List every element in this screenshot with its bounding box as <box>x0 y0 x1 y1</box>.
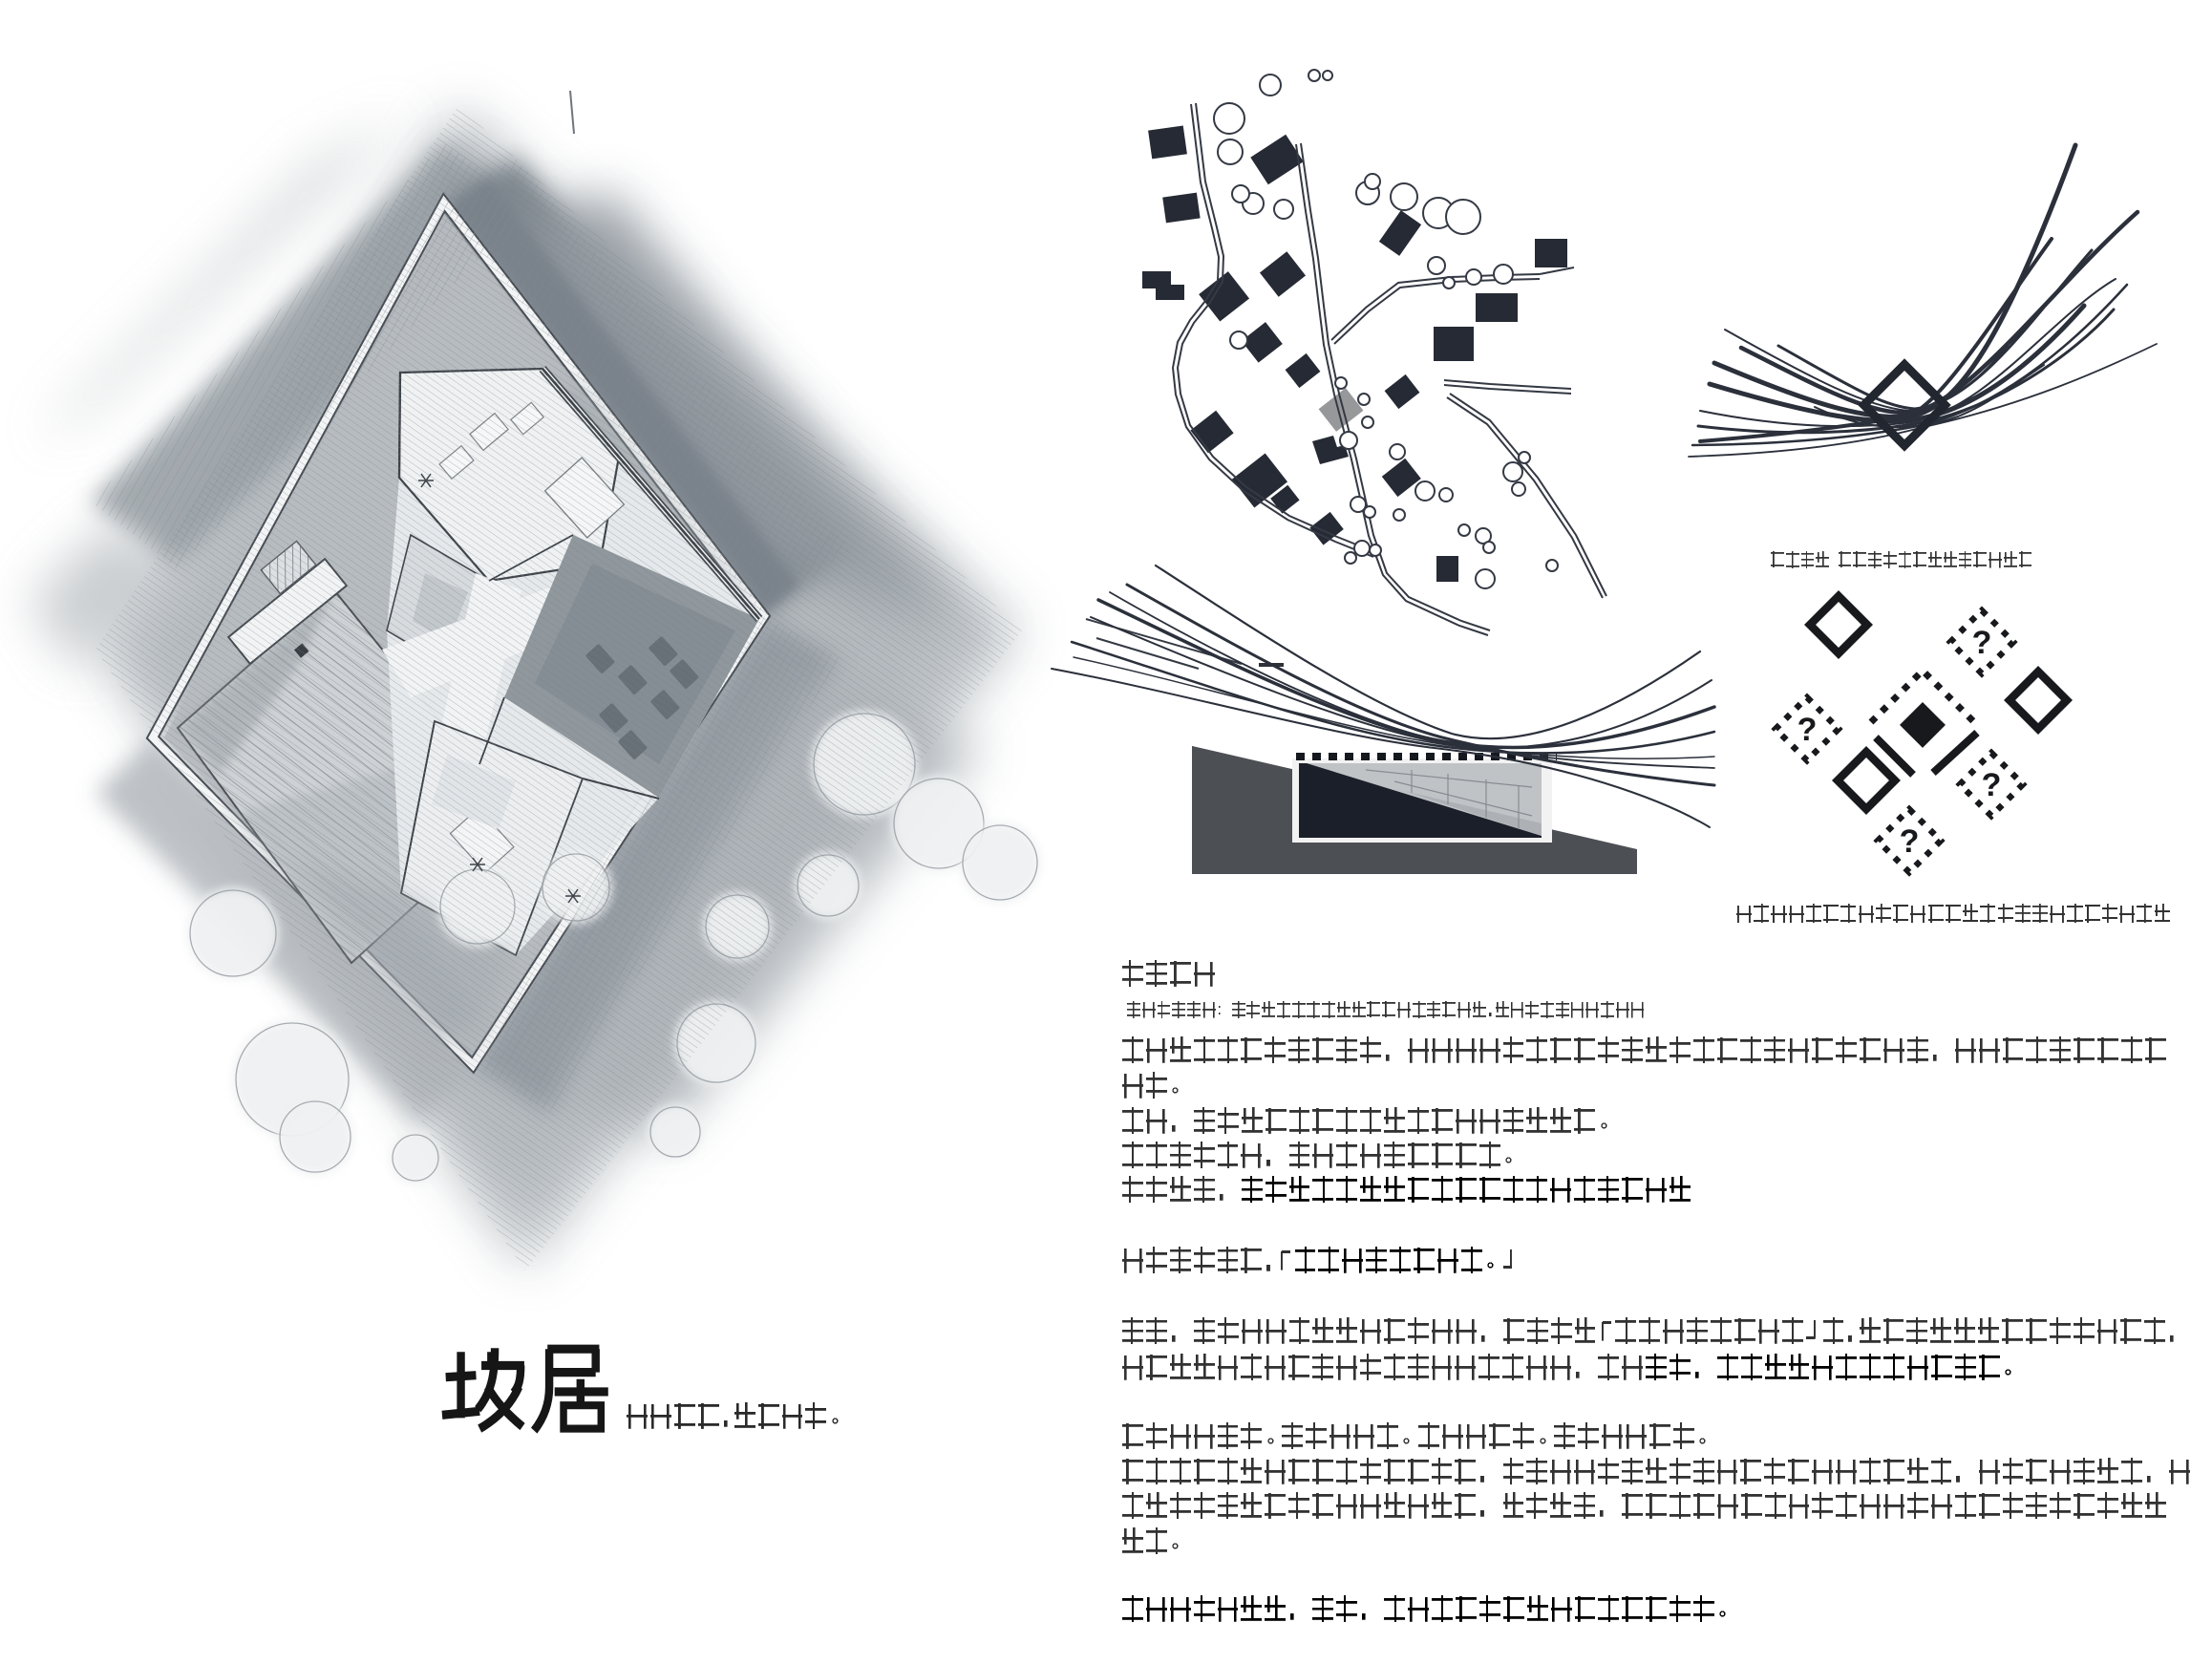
svg-text:?: ? <box>1982 767 2002 803</box>
svg-text:?: ? <box>1900 823 1920 860</box>
svg-text:?: ? <box>1797 712 1818 748</box>
svg-text:?: ? <box>1972 625 1992 661</box>
